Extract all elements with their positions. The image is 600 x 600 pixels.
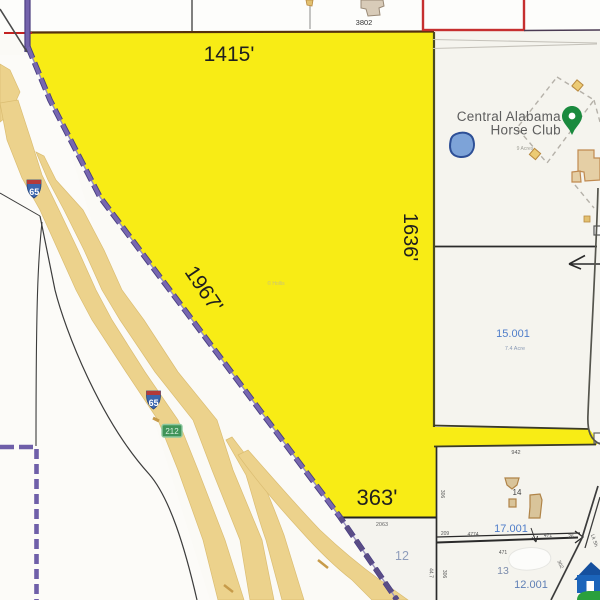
svg-text:1415': 1415' <box>204 43 255 66</box>
svg-text:14: 14 <box>513 488 522 497</box>
svg-text:9 Acres: 9 Acres <box>517 146 534 152</box>
svg-text:65: 65 <box>29 187 39 197</box>
svg-text:3802: 3802 <box>356 18 373 27</box>
svg-text:471: 471 <box>544 533 553 539</box>
svg-text:306: 306 <box>439 490 445 499</box>
svg-text:Horse Club: Horse Club <box>490 123 561 138</box>
svg-text:306: 306 <box>441 570 447 579</box>
svg-text:1636': 1636' <box>399 213 421 261</box>
svg-text:© Hollis: © Hollis <box>267 280 285 287</box>
svg-text:12.001: 12.001 <box>514 579 548 591</box>
svg-text:13: 13 <box>497 565 509 577</box>
svg-text:212: 212 <box>165 427 179 436</box>
svg-text:209: 209 <box>441 531 450 537</box>
svg-text:471: 471 <box>499 550 508 556</box>
svg-text:65: 65 <box>149 398 159 408</box>
svg-text:2063: 2063 <box>376 522 388 528</box>
svg-text:363': 363' <box>357 485 398 510</box>
svg-text:15.001: 15.001 <box>496 328 530 340</box>
svg-text:44.7: 44.7 <box>428 568 434 578</box>
svg-text:26: 26 <box>568 534 574 540</box>
svg-text:17.001: 17.001 <box>494 523 528 535</box>
svg-text:4774: 4774 <box>467 532 478 538</box>
svg-text:942: 942 <box>511 450 520 456</box>
svg-text:12: 12 <box>395 549 409 563</box>
svg-text:7.4 Acre: 7.4 Acre <box>505 346 525 352</box>
